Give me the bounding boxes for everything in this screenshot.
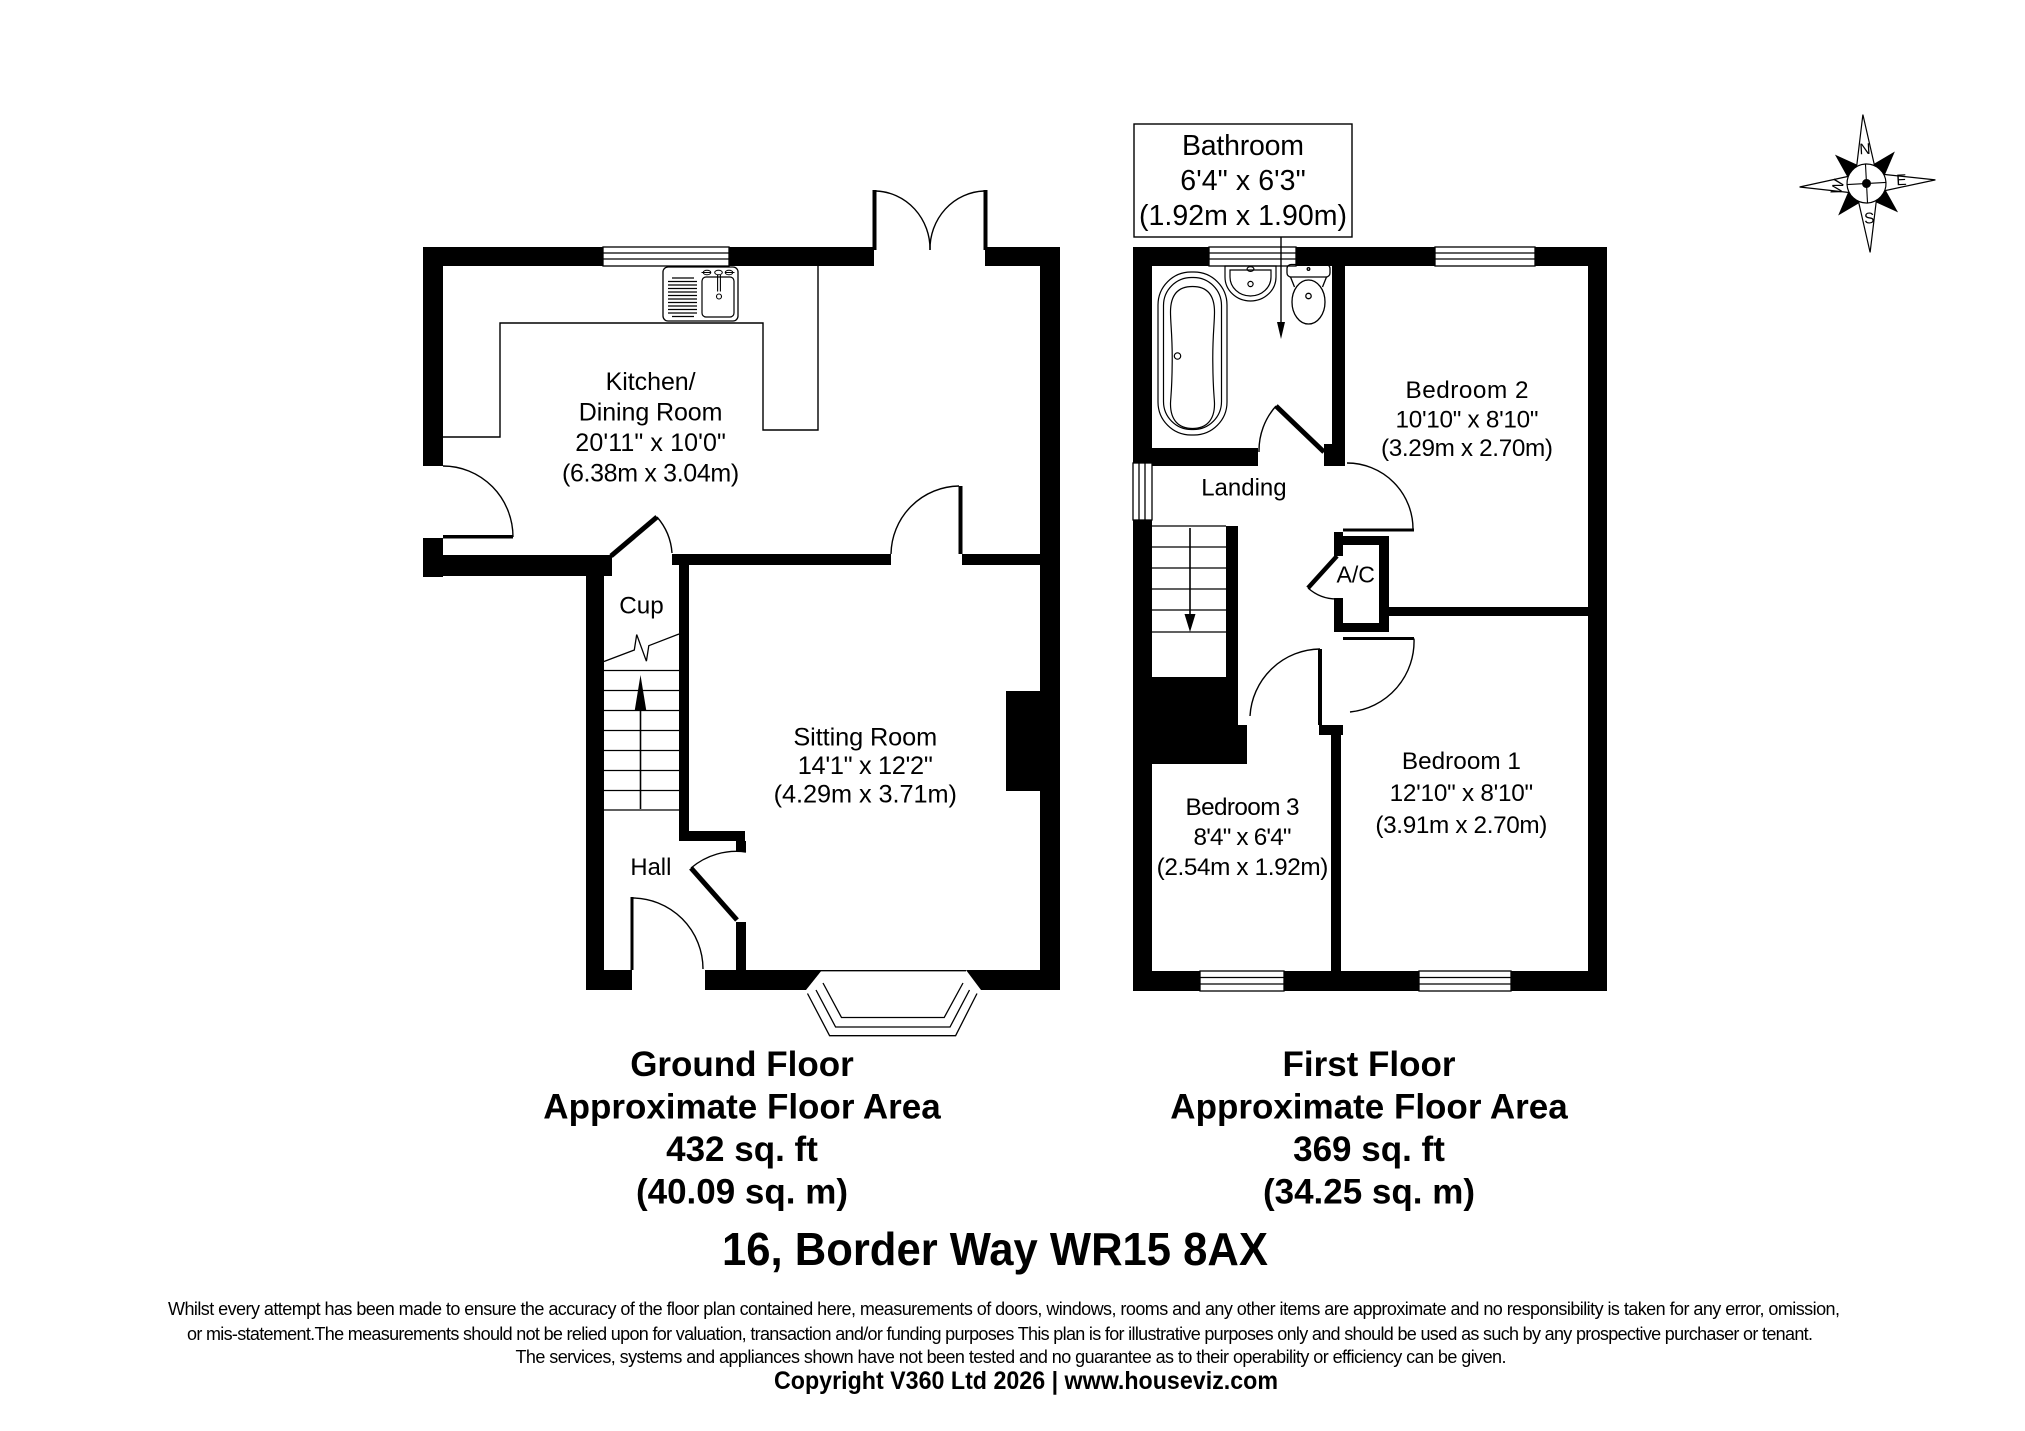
svg-text:432 sq. ft: 432 sq. ft bbox=[666, 1130, 818, 1169]
svg-text:Bedroom 3: Bedroom 3 bbox=[1186, 794, 1300, 821]
svg-text:The services, systems and appl: The services, systems and appliances sho… bbox=[516, 1347, 1507, 1367]
svg-text:20'11" x 10'0": 20'11" x 10'0" bbox=[575, 429, 726, 457]
svg-text:(3.91m x 2.70m): (3.91m x 2.70m) bbox=[1375, 812, 1547, 839]
svg-text:S: S bbox=[1864, 210, 1875, 228]
svg-text:Copyright V360 Ltd 2026 | www.: Copyright V360 Ltd 2026 | www.houseviz.c… bbox=[774, 1367, 1278, 1395]
svg-text:Hall: Hall bbox=[630, 854, 671, 881]
svg-text:(40.09 sq. m): (40.09 sq. m) bbox=[636, 1173, 848, 1212]
svg-text:Approximate Floor Area: Approximate Floor Area bbox=[1170, 1088, 1568, 1127]
svg-text:Sitting Room: Sitting Room bbox=[793, 724, 937, 752]
svg-text:8'4" x 6'4": 8'4" x 6'4" bbox=[1194, 824, 1292, 851]
svg-text:16, Border Way WR15 8AX: 16, Border Way WR15 8AX bbox=[722, 1223, 1268, 1275]
svg-text:369 sq. ft: 369 sq. ft bbox=[1293, 1130, 1445, 1169]
svg-text:(3.29m x 2.70m): (3.29m x 2.70m) bbox=[1381, 435, 1553, 462]
svg-text:Ground Floor: Ground Floor bbox=[630, 1045, 854, 1084]
svg-text:Approximate Floor Area: Approximate Floor Area bbox=[543, 1088, 941, 1127]
svg-text:Kitchen/: Kitchen/ bbox=[606, 368, 696, 396]
svg-text:or mis-statement.The measureme: or mis-statement.The measurements should… bbox=[187, 1324, 1813, 1344]
svg-text:E: E bbox=[1896, 172, 1907, 190]
svg-text:Bathroom: Bathroom bbox=[1182, 130, 1304, 162]
svg-text:12'10" x 8'10": 12'10" x 8'10" bbox=[1390, 780, 1534, 807]
svg-text:6'4" x 6'3": 6'4" x 6'3" bbox=[1180, 165, 1306, 197]
svg-text:Whilst every attempt has been: Whilst every attempt has been made to en… bbox=[168, 1299, 1840, 1319]
svg-text:Bedroom 2: Bedroom 2 bbox=[1406, 377, 1529, 404]
svg-text:A/C: A/C bbox=[1336, 562, 1375, 588]
svg-text:10'10" x 8'10": 10'10" x 8'10" bbox=[1396, 407, 1539, 434]
svg-text:Bedroom 1: Bedroom 1 bbox=[1402, 748, 1521, 775]
svg-text:(4.29m x 3.71m): (4.29m x 3.71m) bbox=[774, 781, 957, 809]
svg-text:Landing: Landing bbox=[1201, 475, 1286, 502]
svg-text:Cup: Cup bbox=[619, 593, 663, 620]
svg-text:(2.54m x 1.92m): (2.54m x 1.92m) bbox=[1157, 854, 1329, 881]
svg-text:First Floor: First Floor bbox=[1282, 1045, 1455, 1084]
svg-text:14'1" x 12'2": 14'1" x 12'2" bbox=[798, 752, 933, 780]
svg-text:(1.92m x 1.90m): (1.92m x 1.90m) bbox=[1139, 200, 1347, 232]
svg-text:N: N bbox=[1859, 141, 1871, 159]
svg-text:(6.38m x 3.04m): (6.38m x 3.04m) bbox=[562, 460, 739, 488]
svg-text:Dining Room: Dining Room bbox=[579, 399, 723, 427]
svg-text:(34.25 sq. m): (34.25 sq. m) bbox=[1263, 1173, 1475, 1212]
